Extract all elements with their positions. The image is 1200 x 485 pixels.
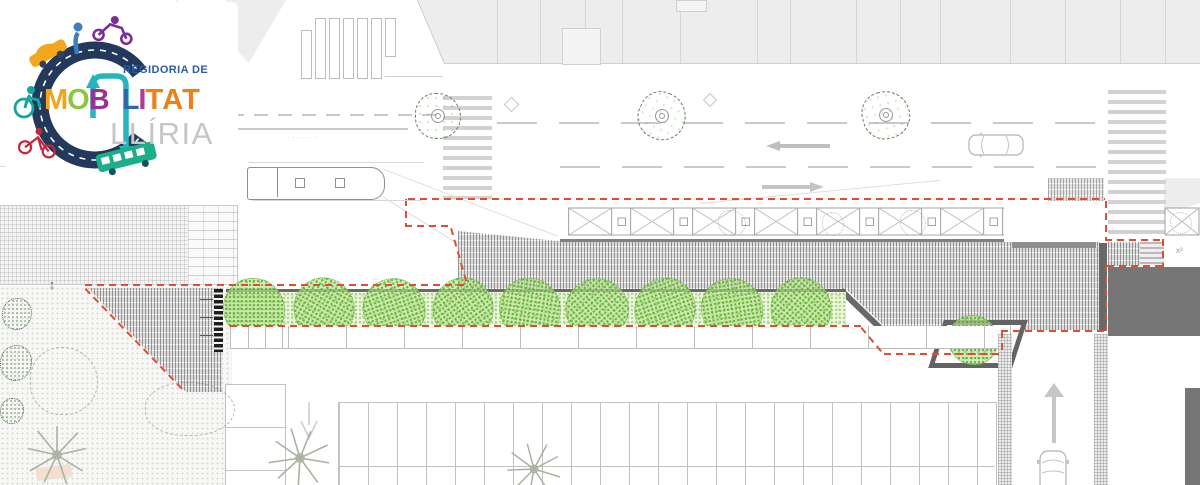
party-wall-line (1065, 0, 1066, 63)
survey-marker: x² (1176, 246, 1183, 255)
project-boundary (230, 325, 862, 327)
parking-row-top (230, 326, 1011, 349)
parking-row-line (226, 427, 285, 428)
crosswalk-bar (315, 18, 326, 79)
turn-arrow-right (762, 181, 824, 193)
parking-divider (265, 326, 266, 348)
curb-line (385, 76, 443, 77)
lane-dashed-line (230, 114, 440, 116)
building-facade-line (445, 63, 1200, 64)
zebra-crossing (1108, 90, 1166, 237)
bus-bay-line (248, 162, 424, 163)
project-boundary (884, 353, 1002, 355)
party-wall-line (540, 0, 541, 63)
stair-tick (200, 299, 213, 300)
logo-letter: A (162, 84, 182, 117)
street-tree-icon (415, 93, 461, 139)
building-block (408, 0, 1200, 64)
project-boundary (85, 284, 465, 286)
direction-arrow-up-head (1044, 383, 1064, 397)
party-wall-line (1120, 0, 1121, 63)
bus-plan (247, 167, 385, 200)
parking-divider (282, 326, 283, 348)
logo-letter: T (145, 84, 162, 117)
stair-tick (200, 335, 213, 336)
lane-dashed-line (560, 166, 1103, 168)
sidewalk-crosshatch (0, 206, 188, 285)
party-wall-line (790, 0, 791, 63)
utility-diamond-marker (703, 93, 717, 107)
pergola-plant-sketch (718, 210, 746, 236)
pavement-joint-line (0, 232, 44, 233)
logo-letter: L (122, 84, 139, 117)
parking-row-line (338, 466, 995, 467)
project-boundary (405, 225, 453, 227)
bus-stop-micro-label: ·· ··· · ···· (285, 135, 319, 141)
project-boundary (1105, 201, 1107, 241)
courtyard-outline (562, 28, 601, 65)
project-boundary (1001, 330, 1105, 332)
logo-letter: B (89, 84, 109, 117)
existing-tree-sketch (145, 382, 235, 436)
paved-plaza-hatch (1108, 242, 1140, 266)
crosswalk-bar (385, 18, 396, 57)
lane-dashed-line (497, 122, 1103, 124)
party-wall-line (856, 0, 857, 63)
pedestrian-marker-icon (48, 280, 60, 292)
party-wall-line (622, 0, 623, 63)
logo-letter: M (44, 84, 67, 117)
parking-divider (248, 326, 249, 348)
paved-edge-strip (1094, 334, 1108, 485)
project-boundary (1107, 265, 1163, 267)
party-wall-line (940, 0, 941, 63)
bus-bay-line (230, 128, 408, 130)
project-boundary (1162, 239, 1164, 267)
curb-line (0, 205, 238, 206)
curb-line (0, 284, 88, 285)
street-tree-icon (630, 84, 694, 148)
party-wall-line (900, 0, 901, 63)
sidewalk-brick-paving (188, 206, 238, 285)
party-wall-line (757, 0, 758, 63)
utility-diamond-marker (504, 97, 520, 113)
bus-cab-line (277, 168, 278, 197)
crosswalk-bar (371, 18, 382, 79)
curb-line (237, 206, 238, 285)
project-boundary (1105, 265, 1107, 331)
party-wall-line (1165, 0, 1166, 63)
pergola-base-line (560, 239, 1004, 242)
crosswalk-bar (329, 18, 340, 79)
project-boundary (408, 198, 1105, 200)
courtyard-outline (676, 0, 707, 12)
crosswalk-bar (357, 18, 368, 79)
steps (1140, 242, 1164, 266)
parking-block-middle (338, 402, 997, 485)
kerb-band (1012, 242, 1096, 248)
site-plan-canvas: ·· ··· · ···· x² (0, 0, 1200, 485)
turn-arrow-left (766, 139, 830, 153)
crosswalk-bar (301, 30, 312, 79)
logo-department-line: REGIDORIA DE (123, 64, 208, 76)
logo-wordmark: M O B L I T A T (44, 84, 199, 117)
logo-letter: O (67, 84, 89, 117)
building-solid-block (1108, 267, 1200, 336)
logo-city-name: LLÍRIA (110, 116, 214, 152)
bus-roof-hatch (295, 178, 305, 188)
party-wall-line (497, 0, 498, 63)
crosswalk-bar (343, 18, 354, 79)
project-boundary (1001, 331, 1003, 354)
pergola-plant-sketch (822, 212, 844, 236)
bus-roof-hatch (335, 178, 345, 188)
palm-sketch (25, 423, 89, 485)
stair-tick (200, 317, 213, 318)
pergola-plant-sketch (1170, 212, 1192, 234)
bus-bay-line (252, 200, 422, 201)
car-plan-vertical (1037, 449, 1069, 485)
project-boundary (405, 199, 407, 227)
pergola-truss (568, 206, 1004, 238)
car-plan (968, 132, 1024, 158)
direction-arrow-up (1052, 396, 1056, 443)
motorcycle-icon (93, 13, 134, 44)
party-wall-line (1010, 0, 1011, 63)
street-tree-icon (857, 86, 916, 145)
stairs (214, 289, 223, 352)
logo-letter: I (138, 84, 145, 117)
project-boundary (1105, 239, 1163, 241)
pergola-plant-sketch (900, 210, 926, 236)
logo-letter: T (182, 84, 199, 117)
building-solid-block (1185, 388, 1200, 485)
existing-tree-sketch (30, 347, 98, 415)
paved-edge-strip (998, 334, 1012, 485)
logo-arrow-gap (109, 84, 122, 117)
